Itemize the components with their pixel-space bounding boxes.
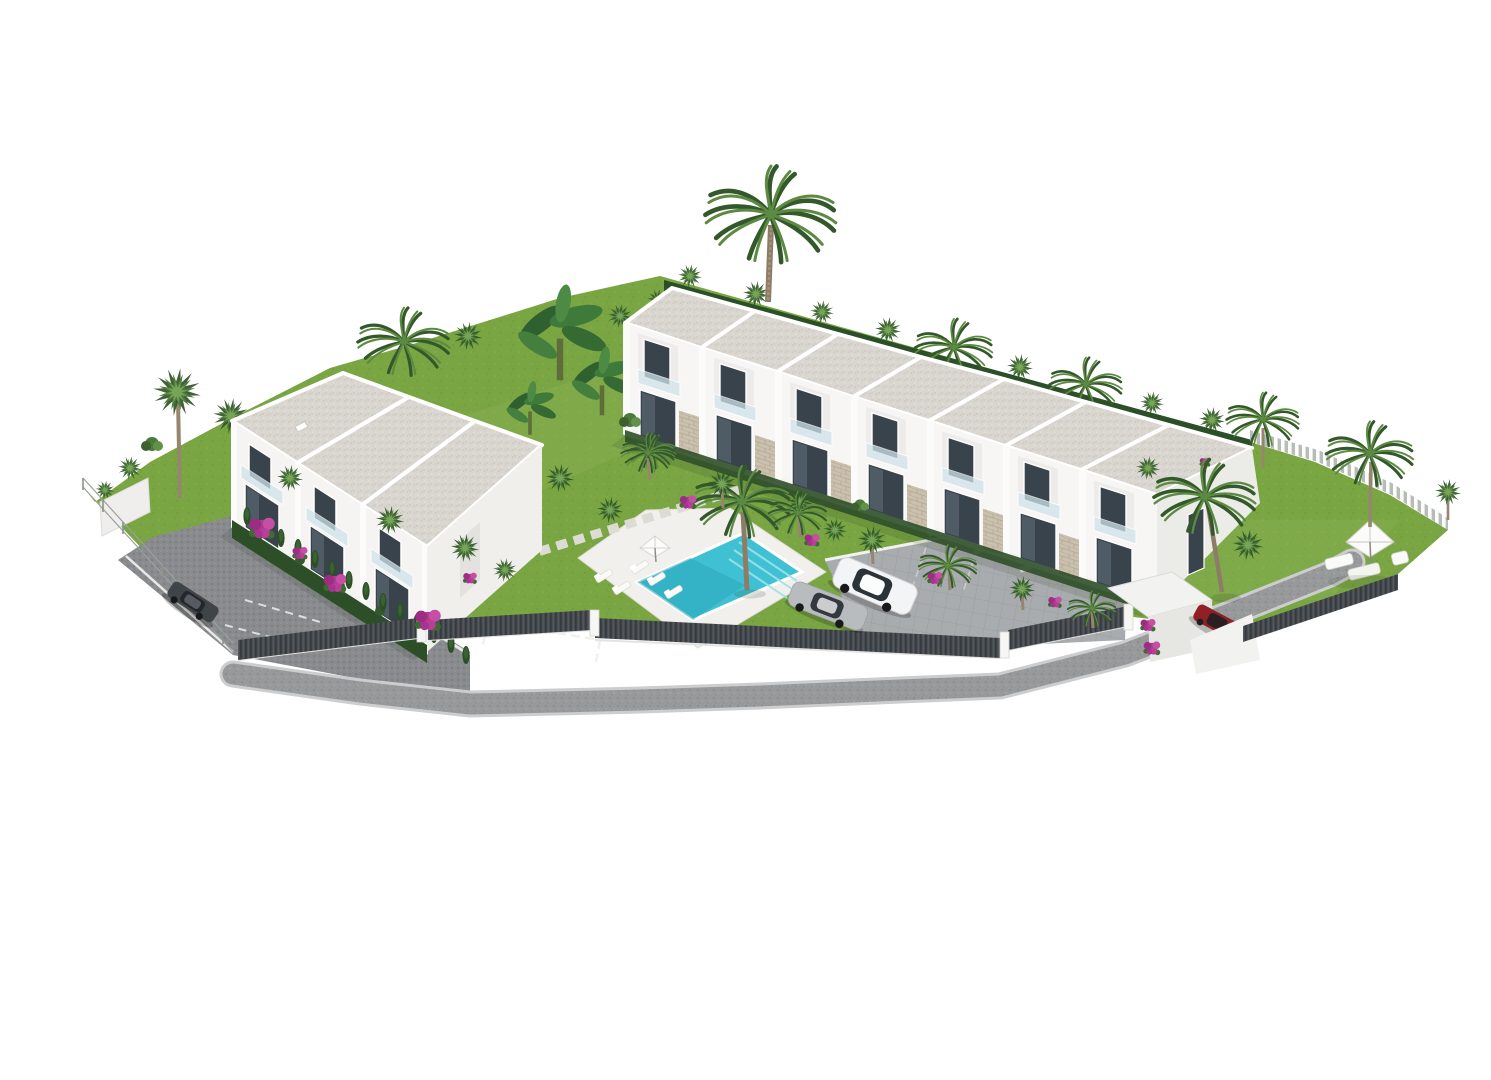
glass-reflection (870, 466, 883, 512)
glass-reflection (1022, 515, 1035, 561)
pilaster (699, 347, 706, 461)
glass-reflection (794, 442, 807, 488)
bougainvillea (1140, 619, 1155, 632)
bougainvillea (1048, 597, 1062, 608)
fence-pillar (1124, 604, 1133, 630)
pilaster (775, 371, 782, 485)
fence-pillar (590, 610, 599, 636)
bougainvillea (249, 518, 275, 539)
fence-pillar (1000, 632, 1009, 658)
pilaster (1003, 445, 1010, 559)
bougainvillea (1143, 641, 1160, 655)
bougainvillea (463, 573, 477, 584)
pilaster (231, 420, 237, 531)
pilaster (927, 421, 934, 535)
bougainvillea (927, 572, 942, 585)
pilaster (851, 396, 858, 510)
glass-reflection (1098, 540, 1111, 586)
render-canvas (0, 0, 1491, 1080)
bougainvillea (323, 574, 346, 593)
pilaster (1079, 470, 1086, 584)
architectural-render (0, 0, 1491, 1080)
bougainvillea (679, 495, 696, 509)
bougainvillea (292, 547, 307, 560)
bougainvillea (415, 610, 441, 631)
glass-reflection (642, 392, 655, 438)
bougainvillea (804, 534, 819, 547)
glass-reflection (718, 417, 731, 463)
glass-reflection (946, 491, 959, 537)
